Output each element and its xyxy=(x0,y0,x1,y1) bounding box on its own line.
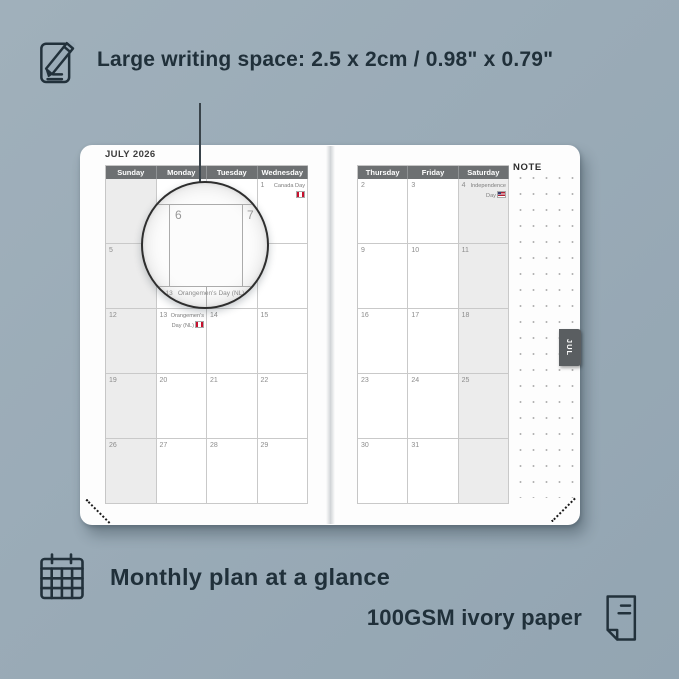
magnified-grid-line xyxy=(242,204,243,286)
calendar-cell: 2 xyxy=(358,179,408,244)
canada-flag-icon xyxy=(195,321,204,328)
weekday-header: Saturday xyxy=(459,166,509,179)
calendar-cell: 28 xyxy=(207,439,258,504)
product-image-canvas: Large writing space: 2.5 x 2cm / 0.98" x… xyxy=(0,0,679,679)
calendar-cell: 22 xyxy=(258,374,309,439)
calendar-cell: 26 xyxy=(106,439,157,504)
calendar-cell: 16 xyxy=(358,309,408,374)
canada-flag-icon xyxy=(296,191,305,198)
magnified-day-number: 7 xyxy=(247,208,254,222)
magnified-grid-line xyxy=(169,204,170,286)
calendar-cell: 12 xyxy=(106,309,157,374)
paper-sheet-icon xyxy=(600,592,642,644)
calendar-cell: 21 xyxy=(207,374,258,439)
magnified-grid-line xyxy=(143,286,267,287)
calendar-cell: 17 xyxy=(408,309,458,374)
paper-quality-feature: 100GSM ivory paper xyxy=(367,592,642,644)
magnified-day-number: 6 xyxy=(175,208,182,222)
month-title: JULY 2026 xyxy=(105,149,156,160)
weekday-header: Thursday xyxy=(358,166,408,179)
calendar-cell: 14 xyxy=(207,309,258,374)
month-tab: JUL xyxy=(559,329,581,366)
calendar-cell: 20 xyxy=(157,374,208,439)
magnifier-circle: 6 7 13 Orangemen's Day (NL) xyxy=(141,181,269,309)
monthly-plan-feature: Monthly plan at a glance xyxy=(38,552,390,602)
calendar-cell: 15 xyxy=(258,309,309,374)
calendar-cell: 30 xyxy=(358,439,408,504)
calendar-cell: 19 xyxy=(106,374,157,439)
calendar-right-page: Thursday Friday Saturday 2 3 4 Independe… xyxy=(357,165,509,504)
pencil-note-icon xyxy=(38,34,84,86)
holiday-label: Orangemen's Day (NL) xyxy=(168,312,205,331)
magnified-grid-line xyxy=(143,204,267,205)
callout-pointer-line xyxy=(199,103,201,183)
holiday-label: Canada Day xyxy=(269,182,306,201)
month-tab-label: JUL xyxy=(565,339,574,356)
calendar-cell-holiday: 13 Orangemen's Day (NL) xyxy=(157,309,208,374)
usa-flag-icon xyxy=(497,191,506,198)
calendar-cell: 18 xyxy=(459,309,509,374)
calendar-cell-holiday: 4 Independence Day xyxy=(459,179,509,244)
calendar-cell: 24 xyxy=(408,374,458,439)
calendar-cell: 11 xyxy=(459,244,509,309)
calendar-cell: 10 xyxy=(408,244,458,309)
holiday-label: Independence Day xyxy=(470,182,506,201)
magnified-holiday-text: 13 Orangemen's Day (NL) xyxy=(151,289,259,299)
calendar-cell xyxy=(459,439,509,504)
monthly-plan-text: Monthly plan at a glance xyxy=(110,564,390,591)
weekday-header: Friday xyxy=(408,166,458,179)
calendar-cell: 3 xyxy=(408,179,458,244)
weekday-header: Tuesday xyxy=(207,166,258,179)
paper-quality-text: 100GSM ivory paper xyxy=(367,605,582,631)
calendar-cell: 23 xyxy=(358,374,408,439)
calendar-grid-icon xyxy=(38,552,86,602)
calendar-cell: 29 xyxy=(258,439,309,504)
writing-space-feature: Large writing space: 2.5 x 2cm / 0.98" x… xyxy=(38,34,553,86)
writing-space-text: Large writing space: 2.5 x 2cm / 0.98" x… xyxy=(97,48,553,72)
weekday-header: Sunday xyxy=(106,166,157,179)
calendar-cell: 9 xyxy=(358,244,408,309)
weekday-header: Wednesday xyxy=(258,166,309,179)
calendar-cell: 25 xyxy=(459,374,509,439)
book-spine xyxy=(326,146,335,524)
calendar-cell: 31 xyxy=(408,439,458,504)
note-label: NOTE xyxy=(513,162,542,173)
calendar-cell: 27 xyxy=(157,439,208,504)
